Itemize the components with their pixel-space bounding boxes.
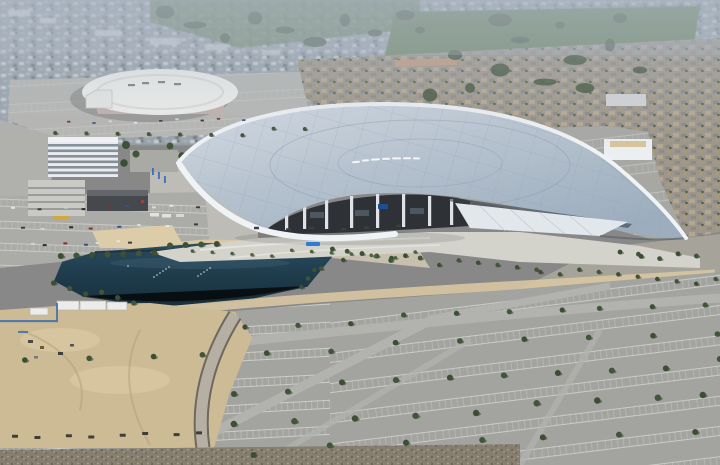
video-board-glimpse	[378, 204, 388, 209]
construction-sand-zone	[0, 301, 252, 448]
lake-sign	[306, 242, 320, 246]
yellow-bus	[53, 216, 69, 220]
parking-garage	[28, 180, 85, 216]
aerial-photo: Aerial photograph of a large modern stad…	[0, 0, 720, 465]
scene-canvas: Aerial photograph of a large modern stad…	[0, 0, 720, 465]
horizon-haze	[0, 0, 720, 55]
red-logo-sign	[141, 200, 144, 203]
